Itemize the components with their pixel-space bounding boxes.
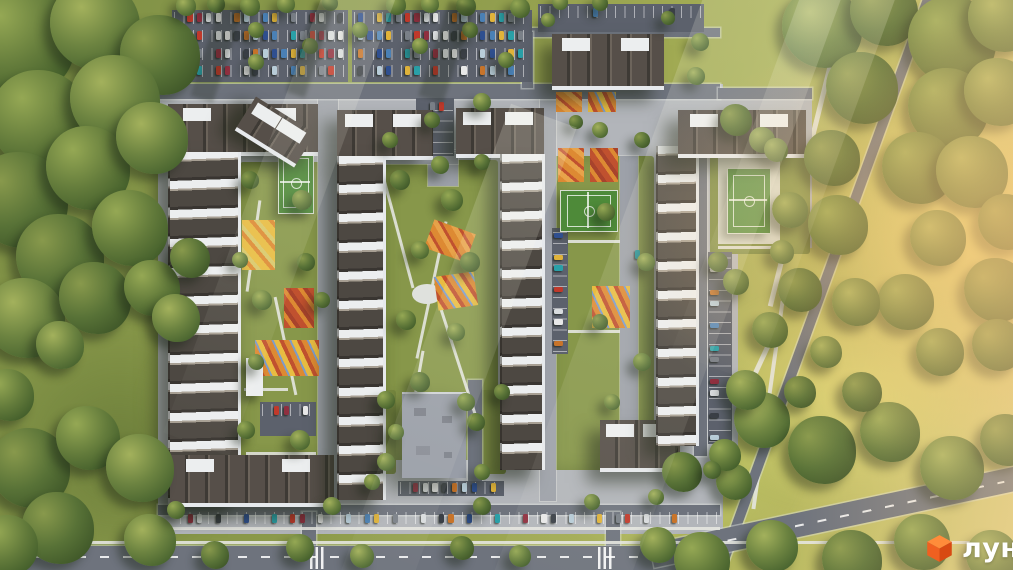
lun-watermark: лун bbox=[926, 534, 1013, 563]
sun-shaft bbox=[333, 104, 577, 570]
sun-shaft bbox=[464, 0, 846, 570]
lun-logo-text: лун bbox=[962, 535, 1013, 562]
lighting-layer bbox=[0, 0, 1013, 570]
lun-logo-cube-icon bbox=[926, 534, 953, 563]
sun-shaft bbox=[671, 0, 899, 383]
tree-shadow bbox=[418, 0, 474, 103]
tree-shadow bbox=[190, 1, 244, 104]
tree-shadow bbox=[286, 1, 334, 98]
sun-shaft bbox=[163, 0, 407, 456]
sun-glow bbox=[0, 0, 1013, 570]
aerial-render: лун bbox=[0, 0, 1013, 570]
